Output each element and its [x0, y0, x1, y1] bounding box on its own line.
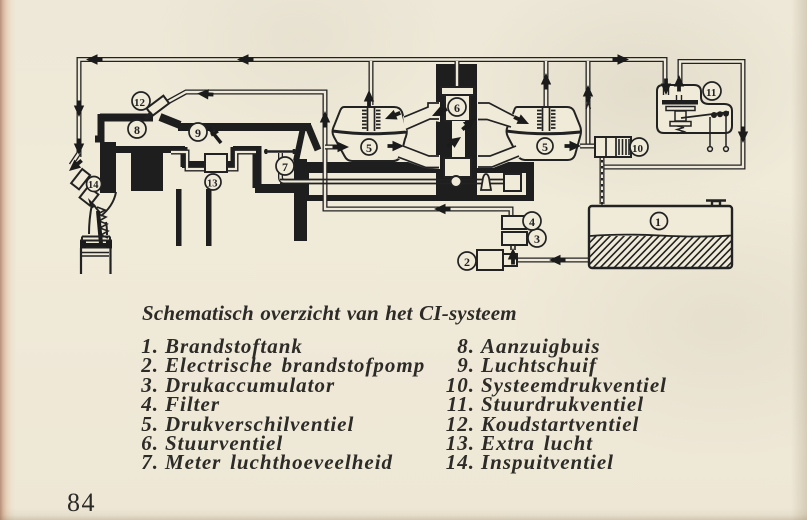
svg-text:11: 11 — [706, 87, 716, 99]
svg-text:10: 10 — [632, 143, 644, 155]
svg-text:12: 12 — [134, 97, 146, 109]
svg-text:1: 1 — [655, 215, 661, 229]
svg-text:6: 6 — [454, 101, 460, 115]
svg-text:5: 5 — [366, 141, 372, 155]
svg-text:4: 4 — [529, 215, 535, 229]
svg-text:3: 3 — [534, 232, 540, 246]
svg-text:8: 8 — [134, 123, 140, 137]
svg-text:13: 13 — [207, 179, 218, 190]
svg-text:2: 2 — [464, 255, 470, 269]
svg-text:14: 14 — [88, 180, 99, 191]
svg-text:7: 7 — [282, 160, 288, 174]
svg-text:5: 5 — [542, 140, 548, 154]
svg-text:9: 9 — [195, 126, 201, 140]
